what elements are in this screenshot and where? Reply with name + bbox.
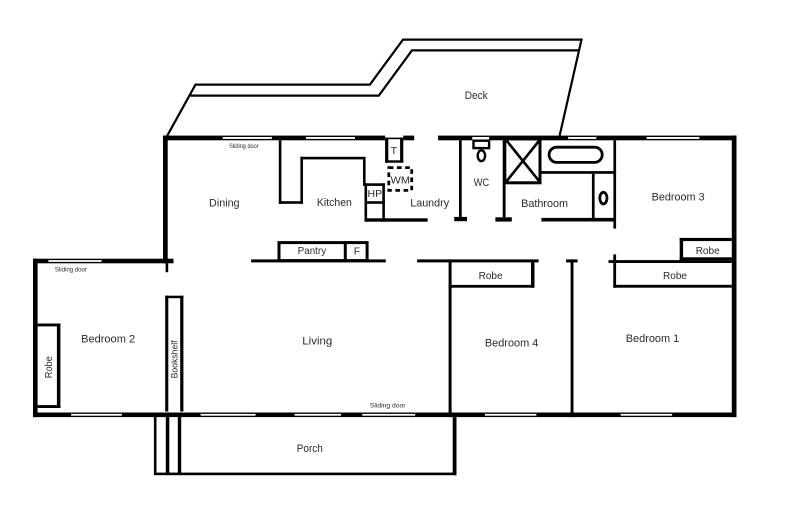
svg-text:Kitchen: Kitchen [317, 197, 352, 209]
svg-text:WM: WM [391, 174, 411, 186]
svg-text:Porch: Porch [297, 443, 323, 455]
svg-text:Pantry: Pantry [298, 245, 327, 257]
svg-text:Deck: Deck [465, 90, 488, 102]
svg-text:Robe: Robe [43, 356, 55, 378]
svg-text:Robe: Robe [696, 245, 720, 257]
svg-text:Dining: Dining [209, 197, 240, 209]
svg-text:Laundry: Laundry [410, 197, 449, 209]
svg-text:Sliding door: Sliding door [229, 143, 259, 150]
svg-text:Bedroom 2: Bedroom 2 [81, 334, 135, 346]
svg-text:Bookshelf: Bookshelf [170, 340, 180, 379]
svg-text:HP: HP [368, 188, 383, 200]
svg-text:Bathroom: Bathroom [521, 198, 568, 210]
svg-text:Bedroom 4: Bedroom 4 [485, 337, 539, 349]
svg-text:Living: Living [302, 336, 332, 348]
svg-text:Sliding door: Sliding door [55, 267, 87, 274]
svg-text:Robe: Robe [479, 270, 503, 282]
svg-text:Bedroom 3: Bedroom 3 [652, 192, 705, 204]
svg-text:Robe: Robe [663, 270, 687, 282]
svg-text:T: T [391, 145, 398, 157]
svg-text:Bedroom 1: Bedroom 1 [626, 333, 680, 345]
svg-text:Sliding door: Sliding door [370, 403, 406, 410]
svg-text:WC: WC [474, 177, 490, 189]
svg-text:F: F [354, 245, 360, 257]
